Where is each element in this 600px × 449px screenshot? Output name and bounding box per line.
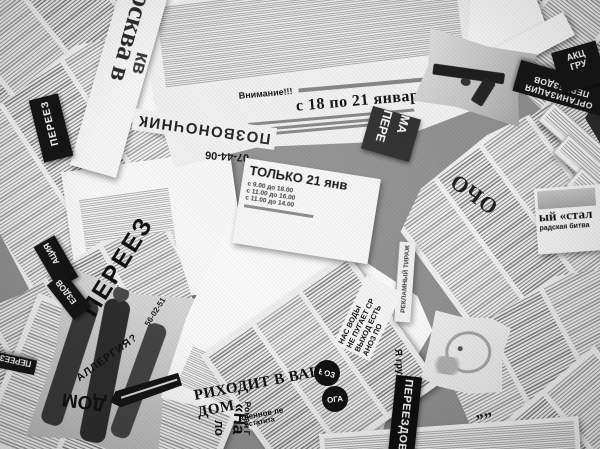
ya-gru-wrap: Я гру <box>390 348 410 375</box>
ya-gru-label: Я гру <box>392 348 405 375</box>
phone-upside-wrap: 07-44-06 <box>204 146 249 167</box>
pereezdov-vertical-label: ПЕРЕЕЗДОВ <box>395 379 415 449</box>
na-big-wrap: «На <box>228 403 250 436</box>
lo-wrap: ло <box>210 420 228 436</box>
phone-upside: 07-44-06 <box>205 148 250 163</box>
atsiya-label: АЦИЯ <box>42 242 61 267</box>
face-smudge <box>430 354 464 376</box>
pereez-vertical-label: ПЕРЕЕЗ <box>39 100 61 147</box>
quote-marks: ”” <box>474 408 495 430</box>
reklam-label: РЕКЛАМНЫЙ ТИРАЖ <box>399 245 411 313</box>
stal-article: ый «стал радская битва <box>534 183 600 254</box>
lo-label: ло <box>212 420 227 436</box>
newspaper-collage-photo: осква в кв ПЕРЕЕЗ Внимание!!! с 18 по 21… <box>0 0 600 449</box>
gun-grip <box>471 77 496 107</box>
na-big-label: «На <box>229 403 250 435</box>
